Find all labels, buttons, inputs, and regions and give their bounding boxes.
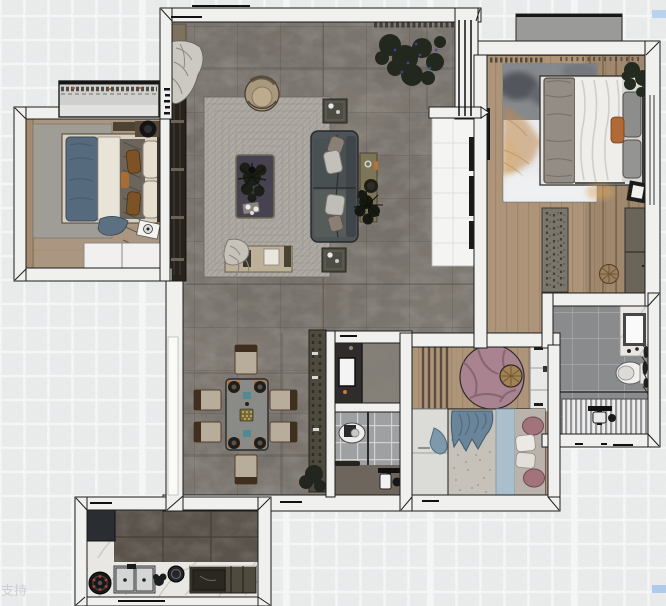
svg-text:支持: 支持: [1, 583, 27, 598]
